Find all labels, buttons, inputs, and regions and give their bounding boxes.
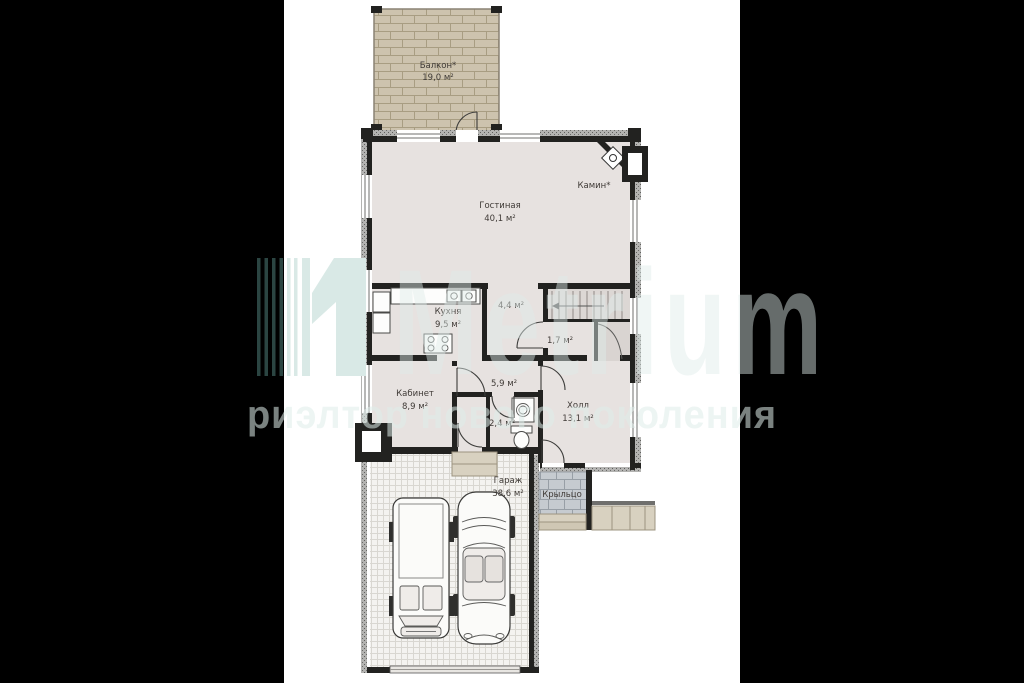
truck-seat (423, 586, 442, 610)
porch-side-landing (592, 506, 655, 530)
window (397, 130, 440, 141)
garage-entry-steps (452, 452, 497, 476)
kitchen-cabinet (373, 292, 390, 312)
balcony: Балкон* 19,0 м² (371, 6, 502, 133)
chimney-block-right (622, 146, 648, 182)
balcony-name: Балкон* (420, 61, 457, 71)
car-seat (485, 556, 503, 582)
garage-area: 38,6 м² (492, 489, 523, 499)
kitchen-cabinet (373, 313, 390, 333)
window (631, 200, 641, 242)
window (362, 175, 372, 218)
living-name: Гостиная (479, 201, 520, 211)
living-area: 40,1 м² (484, 214, 515, 224)
truck-seat (400, 586, 419, 610)
truck (389, 498, 454, 638)
garage-gate (390, 666, 520, 673)
porch-step (539, 522, 586, 530)
floor-plan-image: Балкон* 19,0 м² (0, 0, 1024, 683)
balcony-area: 19,0 м² (422, 73, 453, 83)
truck-windshield (399, 616, 443, 626)
watermark-slogan-text: риэлтор нового поколения (247, 393, 777, 437)
watermark-brand-text: Metrium (393, 240, 828, 407)
fireplace-label: Камин* (578, 181, 611, 191)
car-seat (465, 556, 483, 582)
screenshot-canvas: Балкон* 19,0 м² (0, 0, 1024, 683)
window (500, 130, 540, 141)
balcony-door-opening (456, 130, 478, 142)
porch-name: Крыльцо (542, 490, 582, 500)
porch-step (539, 514, 586, 522)
garage-name: Гараж (494, 476, 523, 486)
car (453, 492, 515, 644)
